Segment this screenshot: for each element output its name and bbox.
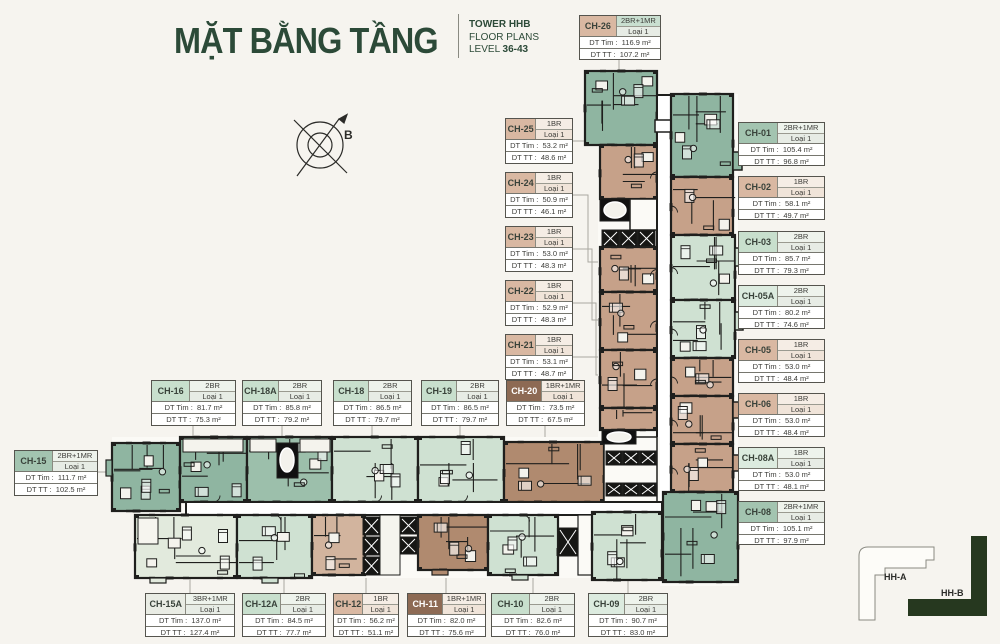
svg-text:HH-A: HH-A: [884, 572, 907, 582]
svg-text:HH-B: HH-B: [941, 588, 964, 598]
svg-text:B: B: [344, 128, 353, 142]
